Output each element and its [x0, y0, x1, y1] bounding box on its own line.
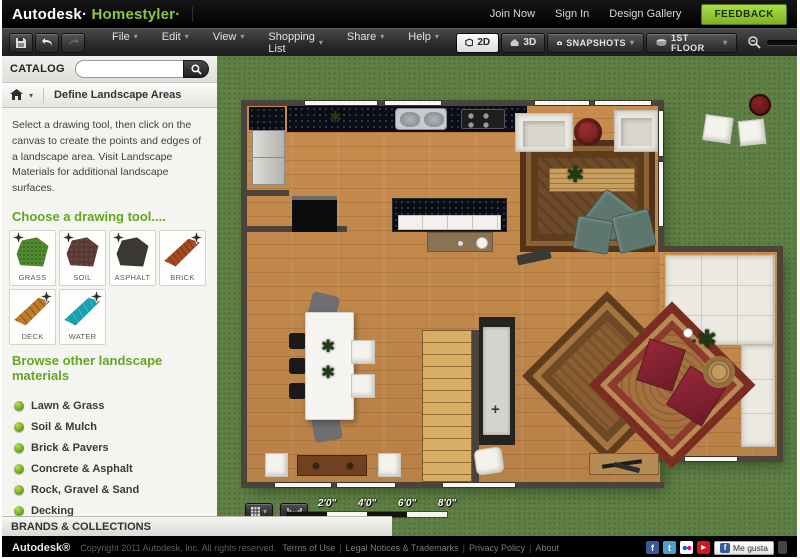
stove-cooktop[interactable]	[461, 109, 505, 129]
3d-house-icon	[510, 37, 519, 48]
chevron-down-icon[interactable]: ▾	[29, 91, 33, 100]
undo-button[interactable]	[35, 33, 59, 53]
view-2d-button[interactable]: 2D	[456, 33, 499, 53]
window[interactable]	[385, 101, 441, 105]
bullet-orb-icon	[14, 401, 24, 411]
tool-grass[interactable]: GRASS	[9, 230, 56, 286]
brand-autodesk: Autodesk·	[12, 6, 87, 23]
brand-homestyler: Homestyler·	[92, 6, 181, 23]
home-icon[interactable]	[10, 89, 23, 101]
floor-pillow[interactable]	[572, 215, 613, 255]
floor-selector-button[interactable]: 1ST FLOOR ▾	[646, 33, 737, 53]
chevron-down-icon: ▾	[319, 38, 323, 47]
material-concrete-asphalt[interactable]: Concrete & Asphalt	[14, 463, 205, 475]
tool-deck[interactable]: DECK	[9, 289, 56, 345]
header-divider	[192, 6, 193, 22]
bullet-orb-icon	[14, 464, 24, 474]
search-button[interactable]	[183, 60, 209, 78]
menu-view[interactable]: View▾	[201, 31, 257, 43]
window[interactable]	[595, 101, 651, 105]
copyright-text: Copyright 2011 Autodesk, Inc. All rights…	[80, 543, 276, 553]
fireplace[interactable]	[292, 196, 337, 232]
chevron-down-icon: ▾	[435, 32, 439, 41]
coffee-table[interactable]	[549, 168, 635, 192]
scale-label: 8'0"	[432, 498, 462, 509]
menu-file[interactable]: File▾	[100, 31, 150, 43]
round-side-table[interactable]	[574, 118, 602, 146]
menu-shopping-list[interactable]: Shopping List▾	[256, 31, 335, 55]
kitchen-sink[interactable]	[395, 108, 447, 130]
window[interactable]	[443, 483, 515, 487]
kitchen-island[interactable]	[392, 198, 507, 232]
zoom-out-icon[interactable]	[748, 36, 761, 49]
kitchen-corner-counter[interactable]	[249, 107, 285, 130]
draw-sparkle-icon	[40, 290, 53, 303]
save-button[interactable]	[9, 33, 33, 53]
panel-description: Select a drawing tool, then click on the…	[2, 108, 217, 201]
potted-plant[interactable]: ✱	[566, 164, 584, 186]
scale-label: 2'0"	[312, 498, 342, 509]
island-cabinets	[398, 215, 501, 230]
bullet-orb-icon	[14, 443, 24, 453]
catalog-header: CATALOG	[2, 56, 217, 83]
bowl	[476, 237, 488, 249]
floorplan-canvas[interactable]: ✱ ✱	[217, 56, 800, 536]
sink-basin	[400, 112, 420, 127]
material-brick-pavers[interactable]: Brick & Pavers	[14, 442, 205, 454]
2d-plan-icon	[465, 37, 473, 48]
chevron-down-icon: ▾	[185, 32, 189, 41]
armchair[interactable]	[515, 113, 573, 152]
table-plant[interactable]: ✱	[321, 338, 335, 355]
autodesk-homestyler-logo: Autodesk· Homestyler·	[12, 6, 180, 23]
media-unit[interactable]: +	[479, 317, 515, 445]
island-side-table[interactable]	[427, 232, 493, 252]
design-gallery-link[interactable]: Design Gallery	[609, 8, 681, 20]
bullet-orb-icon	[14, 485, 24, 495]
menu-edit[interactable]: Edit▾	[150, 31, 201, 43]
menu-help[interactable]: Help▾	[396, 31, 451, 43]
search-input[interactable]	[75, 60, 183, 78]
console-table[interactable]	[297, 455, 367, 476]
tool-soil[interactable]: SOIL	[59, 230, 106, 286]
potted-plant[interactable]: ✱	[329, 110, 342, 125]
redo-button[interactable]	[61, 33, 85, 53]
chevron-down-icon: ▾	[240, 32, 244, 41]
armchair-cushion	[523, 121, 565, 147]
window[interactable]	[535, 101, 589, 105]
ottoman[interactable]	[265, 453, 288, 477]
flickr-icon[interactable]	[680, 541, 693, 554]
draw-sparkle-icon	[190, 231, 203, 244]
sink-basin	[424, 112, 444, 127]
draw-sparkle-icon	[62, 231, 75, 244]
join-now-link[interactable]: Join Now	[490, 8, 535, 20]
patio-grill[interactable]	[749, 94, 771, 116]
terms-link[interactable]: Terms of Use	[282, 543, 335, 553]
sign-in-link[interactable]: Sign In	[555, 8, 589, 20]
floor-lamp[interactable]	[683, 328, 693, 338]
floor-stack-icon	[656, 38, 667, 48]
window[interactable]	[275, 483, 331, 487]
redo-icon	[67, 37, 80, 48]
scale-label: 6'0"	[392, 498, 422, 509]
share-icon[interactable]	[778, 541, 787, 554]
drawing-tools-heading: Choose a drawing tool....	[2, 201, 217, 230]
catalog-sidebar: CATALOG ▾ Define Landscape Areas Select …	[2, 56, 217, 516]
browse-materials-heading: Browse other landscape materials	[2, 345, 217, 389]
potted-plant[interactable]: ✱	[697, 328, 717, 352]
tool-brick[interactable]: BRICK	[159, 230, 206, 286]
bullet-orb-icon	[14, 506, 24, 516]
ottoman[interactable]	[378, 453, 401, 477]
header-bar: Autodesk· Homestyler· Join Now Sign In D…	[2, 0, 797, 28]
panel-breadcrumb: ▾ Define Landscape Areas	[2, 83, 217, 108]
dining-chair-white[interactable]	[351, 374, 375, 398]
scale-label: 4'0"	[352, 498, 382, 509]
draw-sparkle-icon	[112, 231, 125, 244]
toolbar: File▾ Edit▾ View▾ Shopping List▾ Share▾ …	[2, 28, 797, 56]
armchair[interactable]	[614, 110, 658, 152]
material-rock-gravel-sand[interactable]: Rock, Gravel & Sand	[14, 484, 205, 496]
dining-chair-black[interactable]	[289, 333, 306, 349]
menu-share[interactable]: Share▾	[335, 31, 396, 43]
window[interactable]	[685, 457, 737, 461]
autodesk-footer-logo: Autodesk®	[12, 542, 70, 554]
undo-icon	[41, 37, 54, 48]
table-plant[interactable]: ✱	[321, 364, 335, 381]
staircase[interactable]	[422, 330, 472, 482]
window[interactable]	[337, 483, 395, 487]
wall-extension-right[interactable]	[777, 246, 783, 462]
draw-sparkle-icon	[90, 290, 103, 303]
dining-chair-white[interactable]	[351, 340, 375, 364]
draw-sparkle-icon	[12, 231, 25, 244]
armchair-cushion	[621, 118, 652, 146]
material-decking[interactable]: Decking	[14, 505, 205, 517]
facebook-like-button[interactable]: f Me gusta	[714, 541, 774, 555]
accent-chair[interactable]	[473, 446, 504, 476]
chevron-down-icon: ▾	[263, 507, 267, 516]
fridge-door-seam	[253, 157, 284, 158]
facebook-icon[interactable]: f	[646, 541, 659, 554]
chevron-down-icon: ▾	[134, 32, 138, 41]
save-icon	[15, 37, 27, 49]
breadcrumb-divider	[43, 88, 44, 103]
youtube-icon[interactable]: ▶	[697, 541, 710, 554]
view-3d-button[interactable]: 3D	[501, 33, 545, 53]
window[interactable]	[659, 162, 663, 226]
round-ottoman[interactable]	[703, 356, 735, 388]
snapshots-button[interactable]: SNAPSHOTS ▾	[547, 33, 644, 53]
decor-tray[interactable]	[589, 453, 659, 475]
catalog-label: CATALOG	[10, 63, 65, 75]
sectional-sofa-side[interactable]	[741, 345, 775, 447]
wall-stub-1[interactable]	[247, 190, 289, 196]
homestyler-app: Autodesk· Homestyler· Join Now Sign In D…	[0, 0, 800, 559]
chevron-down-icon: ▾	[723, 38, 727, 47]
window[interactable]	[659, 111, 663, 156]
bullet-orb-icon	[14, 422, 24, 432]
material-lawn-grass[interactable]: Lawn & Grass	[14, 400, 205, 412]
panel-title: Define Landscape Areas	[54, 89, 181, 101]
cross-marker: +	[491, 401, 500, 418]
patio-chair[interactable]	[702, 114, 733, 144]
wall-extension-top[interactable]	[658, 246, 783, 252]
about-link[interactable]: About	[535, 543, 559, 553]
chevron-down-icon: ▾	[380, 32, 384, 41]
drawing-tool-grid: GRASS SOIL ASPHALT BRICK DECK	[2, 230, 217, 345]
patio-chair[interactable]	[738, 119, 766, 147]
wall-left[interactable]	[241, 100, 247, 488]
camera-icon	[557, 38, 562, 48]
facebook-icon: f	[720, 543, 730, 553]
refrigerator[interactable]	[252, 130, 285, 185]
zoom-slider-track[interactable]	[767, 40, 800, 45]
window[interactable]	[305, 101, 377, 105]
feedback-button[interactable]: FEEDBACK	[701, 4, 787, 25]
privacy-link[interactable]: Privacy Policy	[469, 543, 525, 553]
material-soil-mulch[interactable]: Soil & Mulch	[14, 421, 205, 433]
footer-bar: Autodesk® Copyright 2011 Autodesk, Inc. …	[2, 536, 797, 559]
brands-collections-bar[interactable]: BRANDS & COLLECTIONS	[2, 516, 392, 536]
search-icon	[191, 64, 202, 75]
chevron-down-icon: ▾	[630, 38, 634, 47]
media-panel	[483, 327, 510, 435]
knob	[458, 241, 463, 246]
twitter-icon[interactable]: t	[663, 541, 676, 554]
dining-chair-black[interactable]	[289, 383, 306, 399]
legal-link[interactable]: Legal Notices & Trademarks	[346, 543, 459, 553]
tool-asphalt[interactable]: ASPHALT	[109, 230, 156, 286]
dining-chair-black[interactable]	[289, 358, 306, 374]
tool-water[interactable]: WATER	[59, 289, 106, 345]
grid-icon	[251, 507, 260, 516]
